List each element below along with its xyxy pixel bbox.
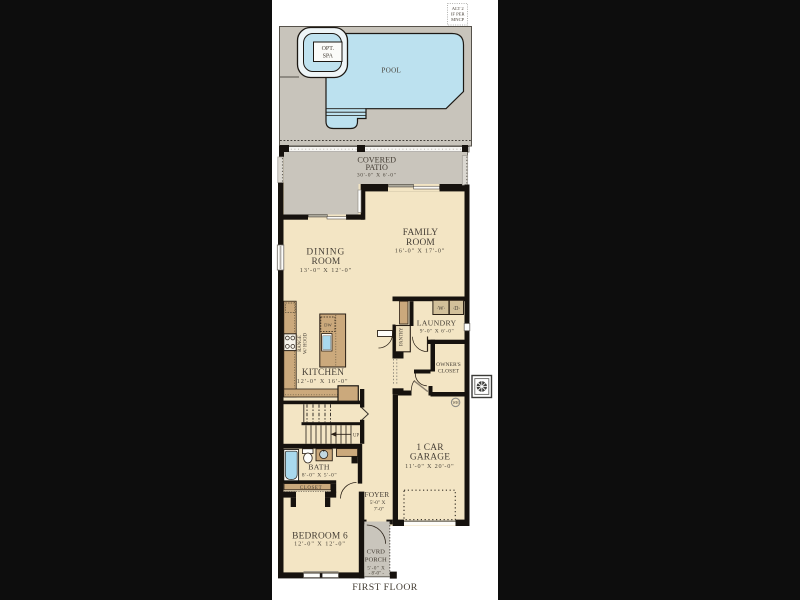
svg-text:CVRD: CVRD [367,549,386,556]
svg-text:LAUNDRY: LAUNDRY [417,319,457,328]
svg-text:DW: DW [324,323,332,328]
svg-text:PATIO: PATIO [365,163,388,172]
svg-text:FIRST FLOOR: FIRST FLOOR [352,582,418,593]
svg-text:GARAGE: GARAGE [410,453,450,463]
svg-text:WH: WH [453,401,459,405]
svg-text:11'-0" X 20'-0": 11'-0" X 20'-0" [405,463,454,470]
svg-text:13'-0" X 12'-0": 13'-0" X 12'-0" [300,267,353,274]
svg-text:12'-0" X 12'-0": 12'-0" X 12'-0" [294,541,346,548]
svg-text:PANTRY: PANTRY [400,327,405,346]
svg-text:POOL: POOL [382,66,401,74]
svg-text:16'-0" X 17'-0": 16'-0" X 17'-0" [395,248,445,255]
svg-text:1 CAR: 1 CAR [416,443,444,453]
svg-text:SPA: SPA [323,53,334,59]
svg-text:ROOM: ROOM [312,257,341,267]
svg-text:FOYER: FOYER [364,490,390,499]
svg-text:9'-0" X 6'-0": 9'-0" X 6'-0" [420,328,454,334]
svg-text:7'-0": 7'-0" [374,507,384,513]
svg-text:PORCH: PORCH [365,556,387,563]
svg-text:12'-0" X 16'-0": 12'-0" X 16'-0" [297,378,349,385]
svg-text:CLOSET: CLOSET [300,486,323,491]
svg-text:- 8'-0" -: - 8'-0" - [369,571,385,576]
svg-text:5'-0" X: 5'-0" X [370,500,386,506]
svg-text:W/ HOOD: W/ HOOD [304,333,309,354]
svg-text:MNCP: MNCP [451,17,464,22]
svg-text:BATH: BATH [308,463,330,472]
svg-text:KITCHEN: KITCHEN [302,368,344,378]
svg-text:FAMILY: FAMILY [403,228,439,238]
svg-text:OPT.: OPT. [322,46,335,52]
svg-text:CLOSET: CLOSET [438,368,460,374]
svg-text:ALT 2: ALT 2 [452,6,465,11]
svg-text:IF PER: IF PER [451,12,466,17]
svg-text:30'-0" X 6'-0": 30'-0" X 6'-0" [357,172,397,178]
svg-text:OWNER'S: OWNER'S [436,362,461,368]
svg-text:RANGE: RANGE [298,335,303,352]
svg-text:·W·: ·W· [436,306,445,312]
svg-text:·D·: ·D· [452,306,460,312]
svg-text:ROOM: ROOM [406,238,435,248]
svg-text:DINING: DINING [306,247,345,257]
svg-text:8'-0" X 5'-0": 8'-0" X 5'-0" [302,473,337,479]
svg-text:UP: UP [353,434,359,439]
